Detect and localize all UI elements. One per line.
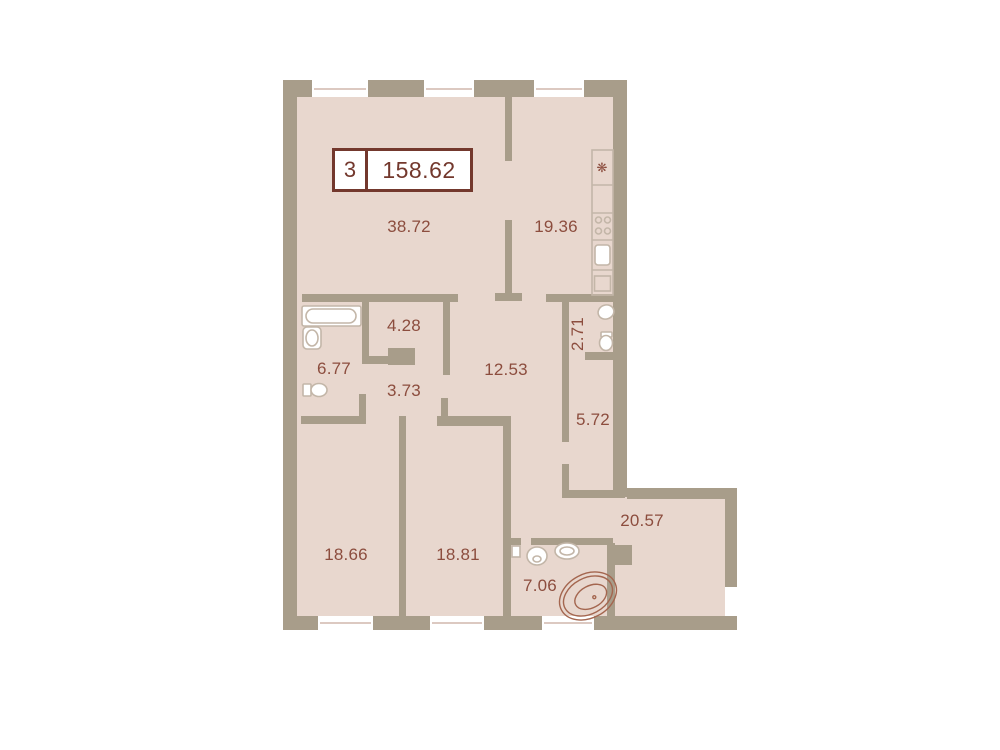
room-area-label-bathroom-1: 6.77 <box>317 359 351 379</box>
floor-plan: ❋ 3 158.62 38.72 19.36 4.28 6.77 3.73 12… <box>0 0 1000 750</box>
room-area-label-hall-small: 3.73 <box>387 381 421 401</box>
room-area-label-hallway: 12.53 <box>484 360 528 380</box>
rooms-count-value: 3 <box>335 151 368 189</box>
room-area-label-living-room: 38.72 <box>387 217 431 237</box>
room-area-label-wc: 2.71 <box>568 317 588 351</box>
room-area-label-bedroom-1: 18.66 <box>324 545 368 565</box>
room-area-label-bedroom-2: 18.81 <box>436 545 480 565</box>
toilet-icon <box>600 336 613 351</box>
toilet-icon <box>311 384 327 397</box>
room-area-label-wardrobe: 4.28 <box>387 316 421 336</box>
room-area-label-kitchen: 19.36 <box>534 217 578 237</box>
sink-icon <box>596 303 616 321</box>
toilet-tank-icon <box>303 384 311 396</box>
stove-burner-icon <box>596 228 602 234</box>
boiler-icon <box>512 546 520 557</box>
title-box: 3 158.62 <box>332 148 473 192</box>
sink-icon <box>555 543 579 559</box>
cabinet-icon <box>595 276 611 291</box>
kitchen-sink-icon <box>595 245 610 265</box>
room-area-label-corridor: 5.72 <box>576 410 610 430</box>
room-area-label-room-right: 20.57 <box>620 511 664 531</box>
oval-bathtub-icon <box>551 562 625 629</box>
stove-burner-icon <box>605 217 611 223</box>
stove-burner-icon <box>596 217 602 223</box>
fridge-icon: ❋ <box>597 160 608 176</box>
total-area-value: 158.62 <box>368 151 470 189</box>
room-area-label-bathroom-2: 7.06 <box>523 576 557 596</box>
stove-burner-icon <box>605 228 611 234</box>
